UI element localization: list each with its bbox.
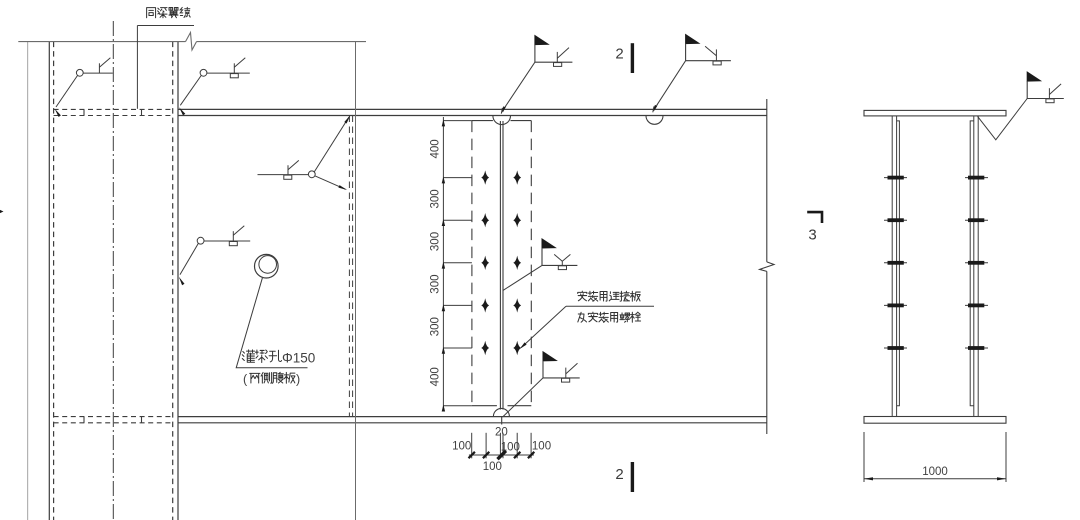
svg-text:Φ150: Φ150 [282, 350, 315, 365]
svg-text:2: 2 [615, 46, 623, 63]
svg-text:300: 300 [430, 275, 442, 294]
svg-text:100: 100 [532, 440, 551, 452]
svg-text:300: 300 [430, 232, 442, 251]
svg-text:100: 100 [501, 441, 520, 453]
svg-text:1000: 1000 [922, 466, 948, 478]
svg-text:20: 20 [495, 427, 508, 439]
svg-text:100: 100 [452, 440, 471, 452]
svg-text:300: 300 [430, 317, 442, 336]
svg-text:100: 100 [483, 461, 502, 473]
svg-text:400: 400 [430, 139, 442, 158]
svg-text:3: 3 [808, 227, 816, 244]
svg-text:300: 300 [430, 189, 442, 208]
svg-text:): ) [296, 373, 300, 387]
svg-text:400: 400 [430, 367, 442, 386]
svg-text:2: 2 [615, 466, 623, 483]
